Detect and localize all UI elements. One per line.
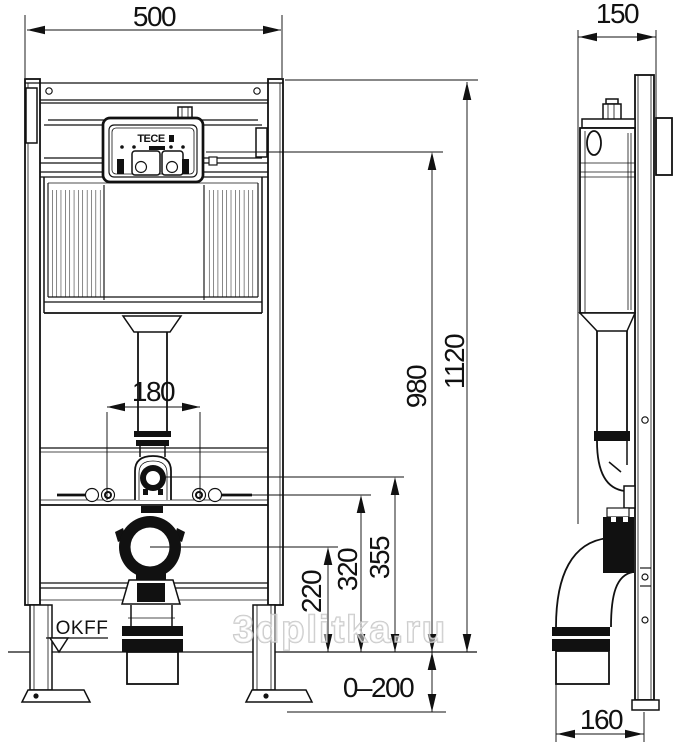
brand-logo: TECE [137,133,165,145]
flush-plate: TECE [103,107,203,182]
drain-pipe-front [122,605,183,684]
cistern-side [580,99,635,331]
svg-text:1120: 1120 [439,334,470,389]
wall-plate [656,118,672,175]
svg-text:150: 150 [596,0,639,29]
svg-text:320: 320 [332,548,363,591]
drain-elbow-side [552,517,634,684]
dim-outlet-offset: 160 [556,684,644,742]
dim-frame-width: 500 [25,1,282,78]
floor-level-label: OKFF [56,618,109,639]
flush-pipe-side [594,331,635,517]
dim-floor-adjust: 0–200 [287,652,446,712]
svg-text:500: 500 [133,1,176,32]
cistern-ribs-left [52,190,101,297]
svg-text:980: 980 [401,365,432,408]
svg-text:160: 160 [580,704,623,735]
wc-frame-drawing: TECE [0,0,678,746]
side-view [552,75,672,710]
cross-member [40,448,268,513]
drain-socket-front [115,516,185,604]
watermark-text: 3dplitka.ru [233,609,447,651]
technical-drawing-canvas: TECE [0,0,678,746]
frame-screw-left [46,88,52,94]
svg-text:0–200: 0–200 [343,672,414,703]
rail-clip-right [256,128,267,157]
cistern-front [44,177,262,313]
svg-text:355: 355 [364,536,395,579]
frame-screw-right [254,88,260,94]
floor-level-marker: OKFF [46,618,108,652]
svg-text:180: 180 [132,376,175,407]
svg-text:220: 220 [296,570,327,613]
foot-side [632,700,659,710]
wall-bracket-left [26,88,37,143]
cistern-ribs-right [207,190,256,297]
